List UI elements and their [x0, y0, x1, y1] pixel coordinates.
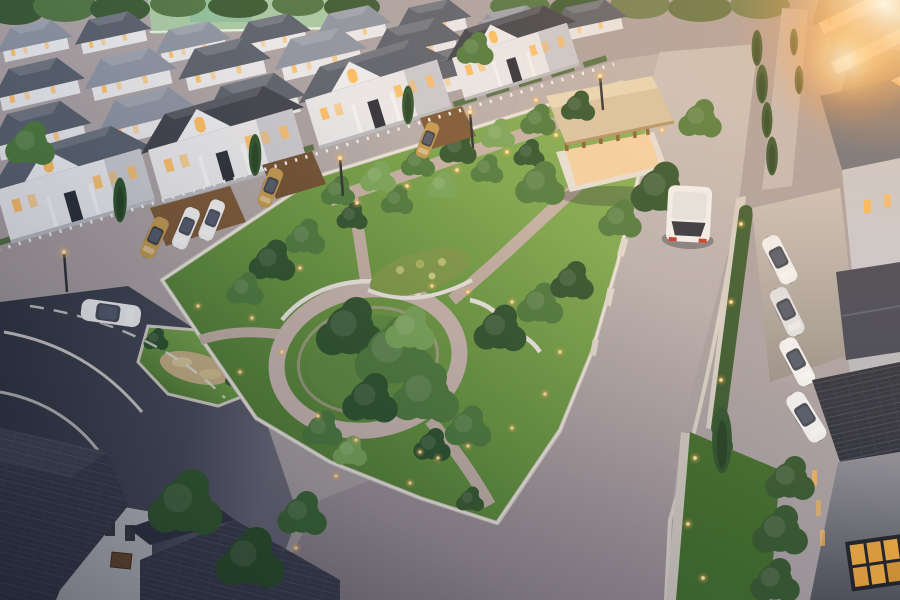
aerial-estate-render: [0, 0, 900, 600]
scene-canvas: [0, 0, 900, 600]
atmosphere: [0, 0, 900, 600]
